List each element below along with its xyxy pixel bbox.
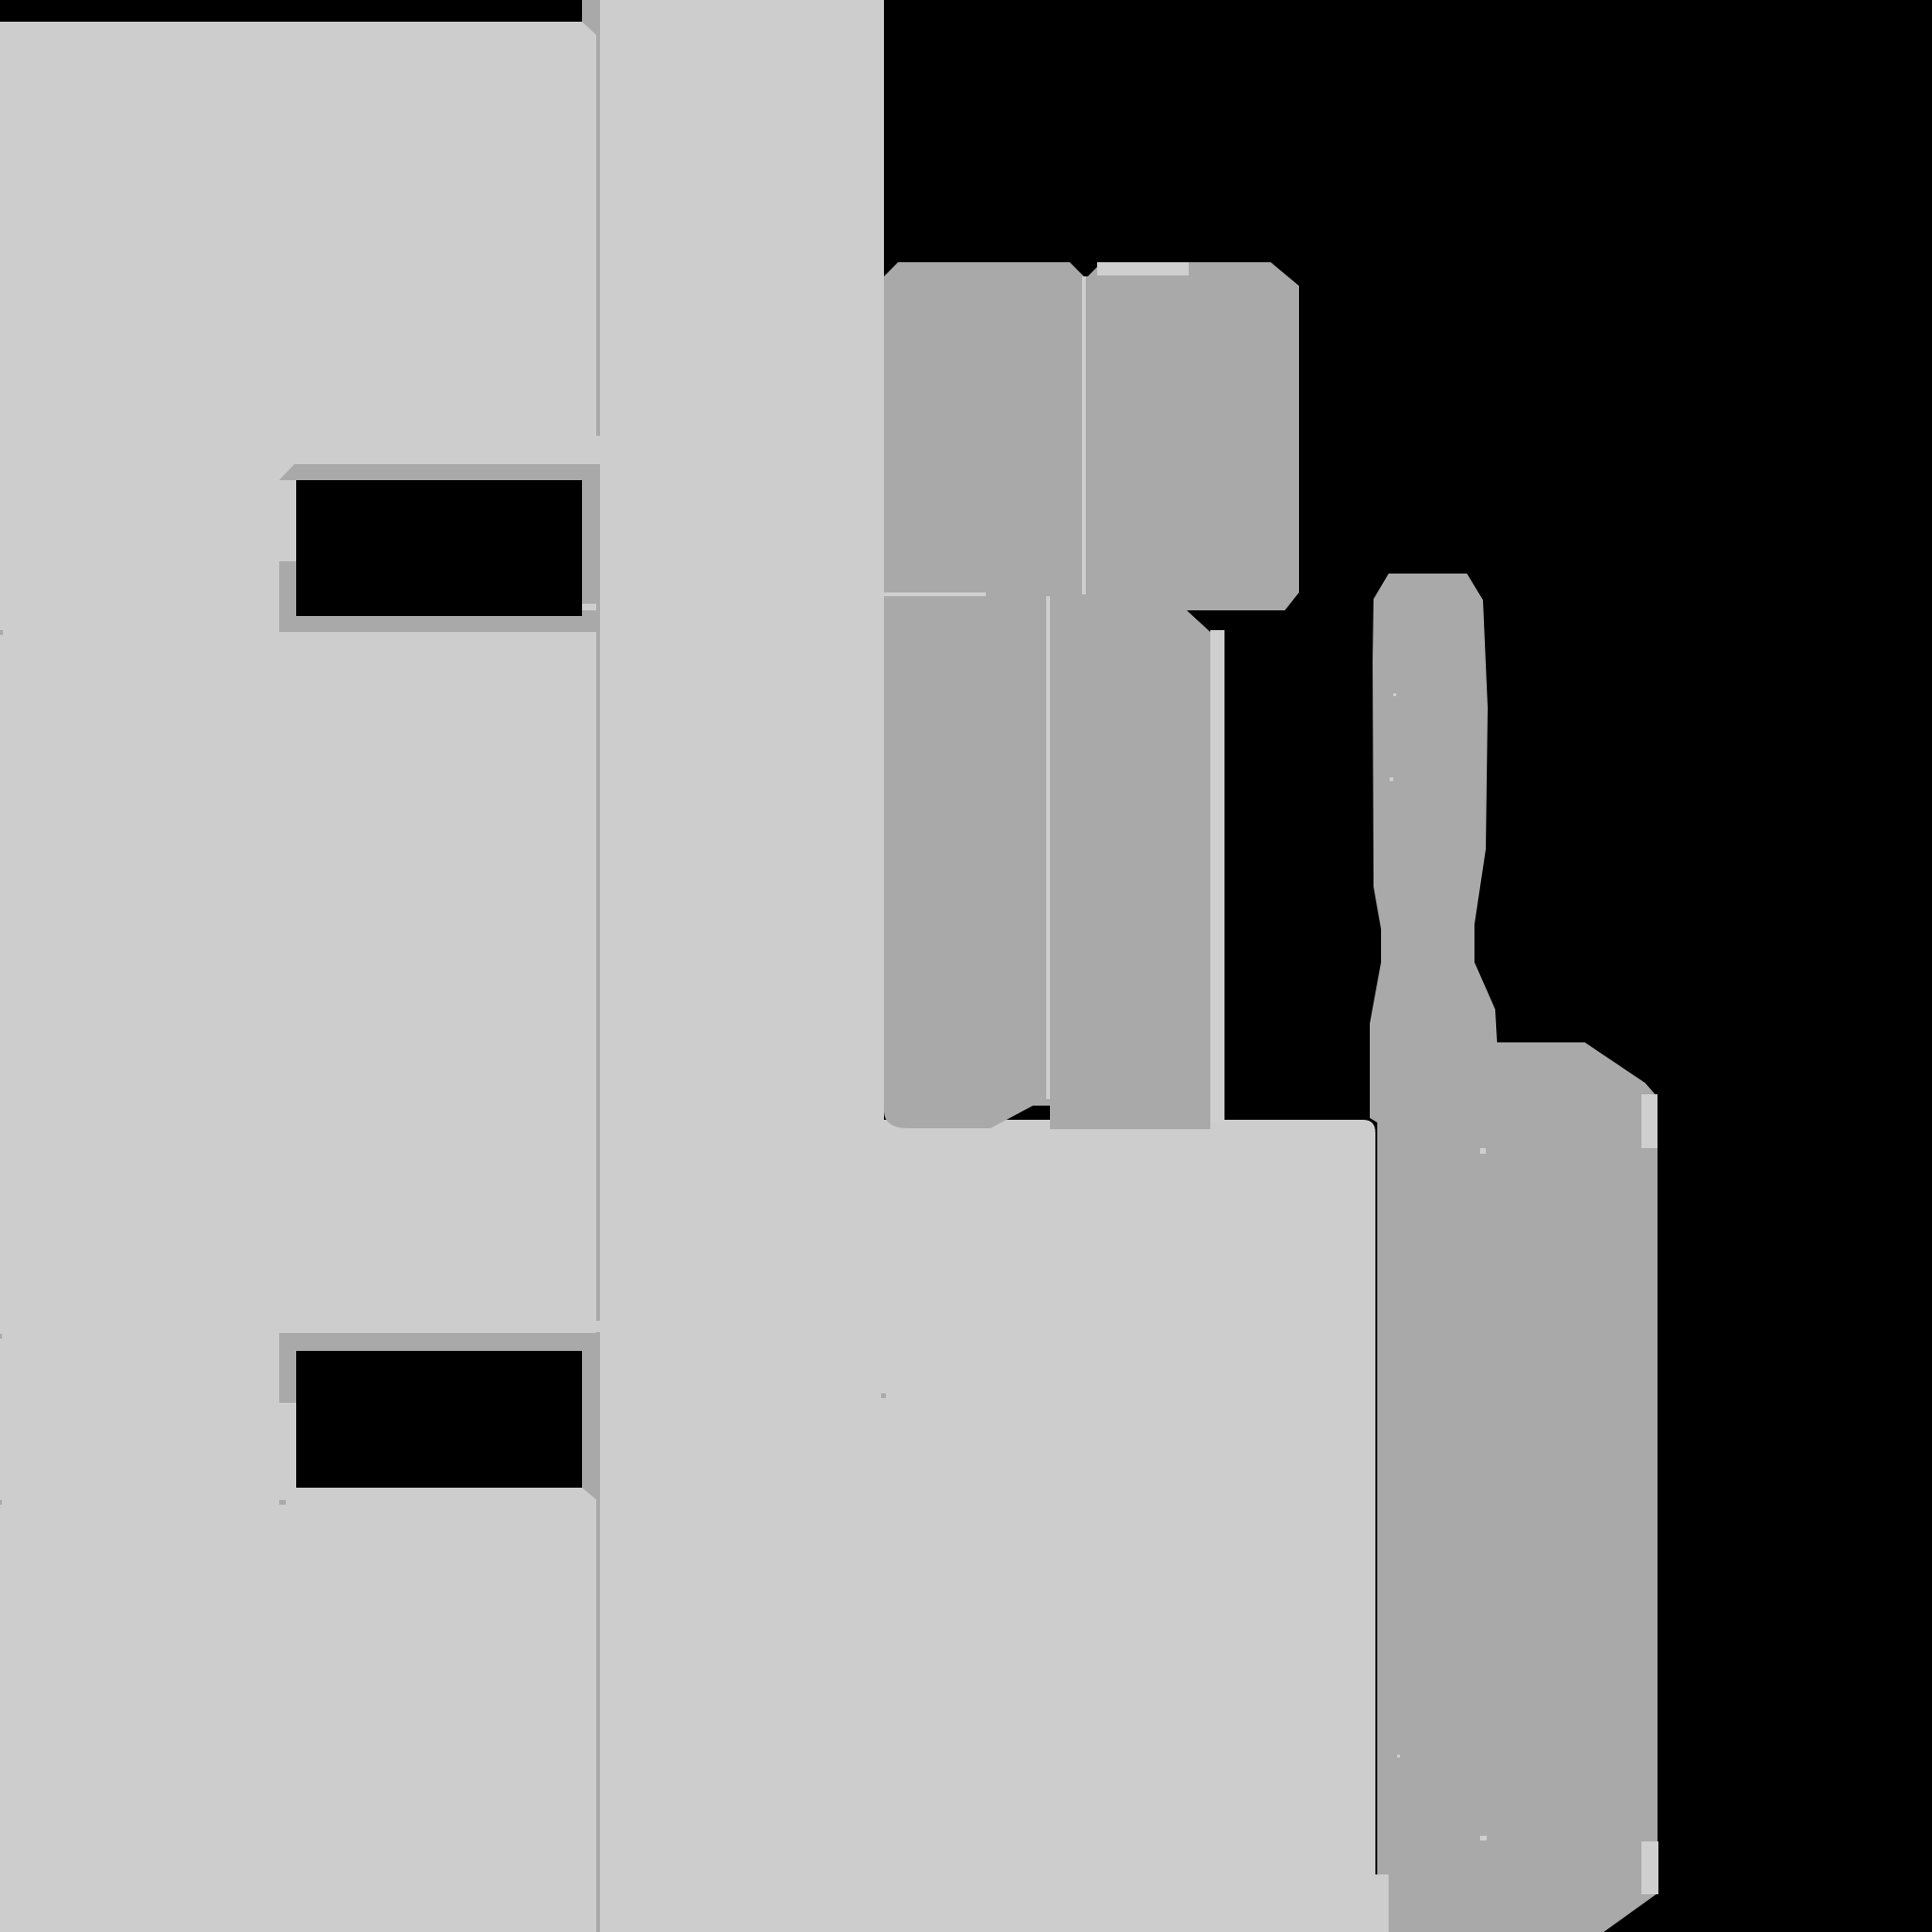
card-horizontal-seam <box>884 592 986 596</box>
speck-blob-1 <box>1480 1148 1486 1154</box>
divider-gap-lower <box>596 1321 600 1332</box>
speck-vase-1 <box>1393 693 1396 696</box>
scene-canvas <box>0 0 1932 1932</box>
speck-below-lower-frame <box>279 1500 286 1505</box>
opening-upper-dark <box>296 480 582 616</box>
divider-gap-upper <box>596 436 600 464</box>
card-vertical-seam-lower <box>1046 596 1050 1099</box>
top-strip <box>0 0 582 22</box>
card-top-bridge-highlight <box>1097 262 1189 275</box>
speck-vase-2 <box>1390 777 1393 781</box>
posterized-scene <box>0 0 1932 1932</box>
card-vertical-seam-upper <box>1082 276 1086 594</box>
blob-edge-highlight-lower <box>1641 1841 1658 1894</box>
card-right-light-strip <box>1210 630 1224 1123</box>
speck-blob-2 <box>1397 1755 1400 1757</box>
speck-bottom-panel <box>881 1393 886 1398</box>
bottom-panel <box>884 1120 1375 1932</box>
panel-divider-line <box>596 0 600 1932</box>
blob-edge-highlight-upper <box>1641 1094 1657 1148</box>
opening-lower-dark <box>296 1351 582 1488</box>
bottom-panel-foot-extension <box>1374 1874 1389 1932</box>
speck-left-edge-2 <box>0 1334 2 1339</box>
left-panel <box>0 0 884 1932</box>
speck-blob-3 <box>1480 1836 1487 1840</box>
speck-left-edge-1 <box>0 630 3 635</box>
speck-left-edge-3 <box>0 1500 2 1505</box>
